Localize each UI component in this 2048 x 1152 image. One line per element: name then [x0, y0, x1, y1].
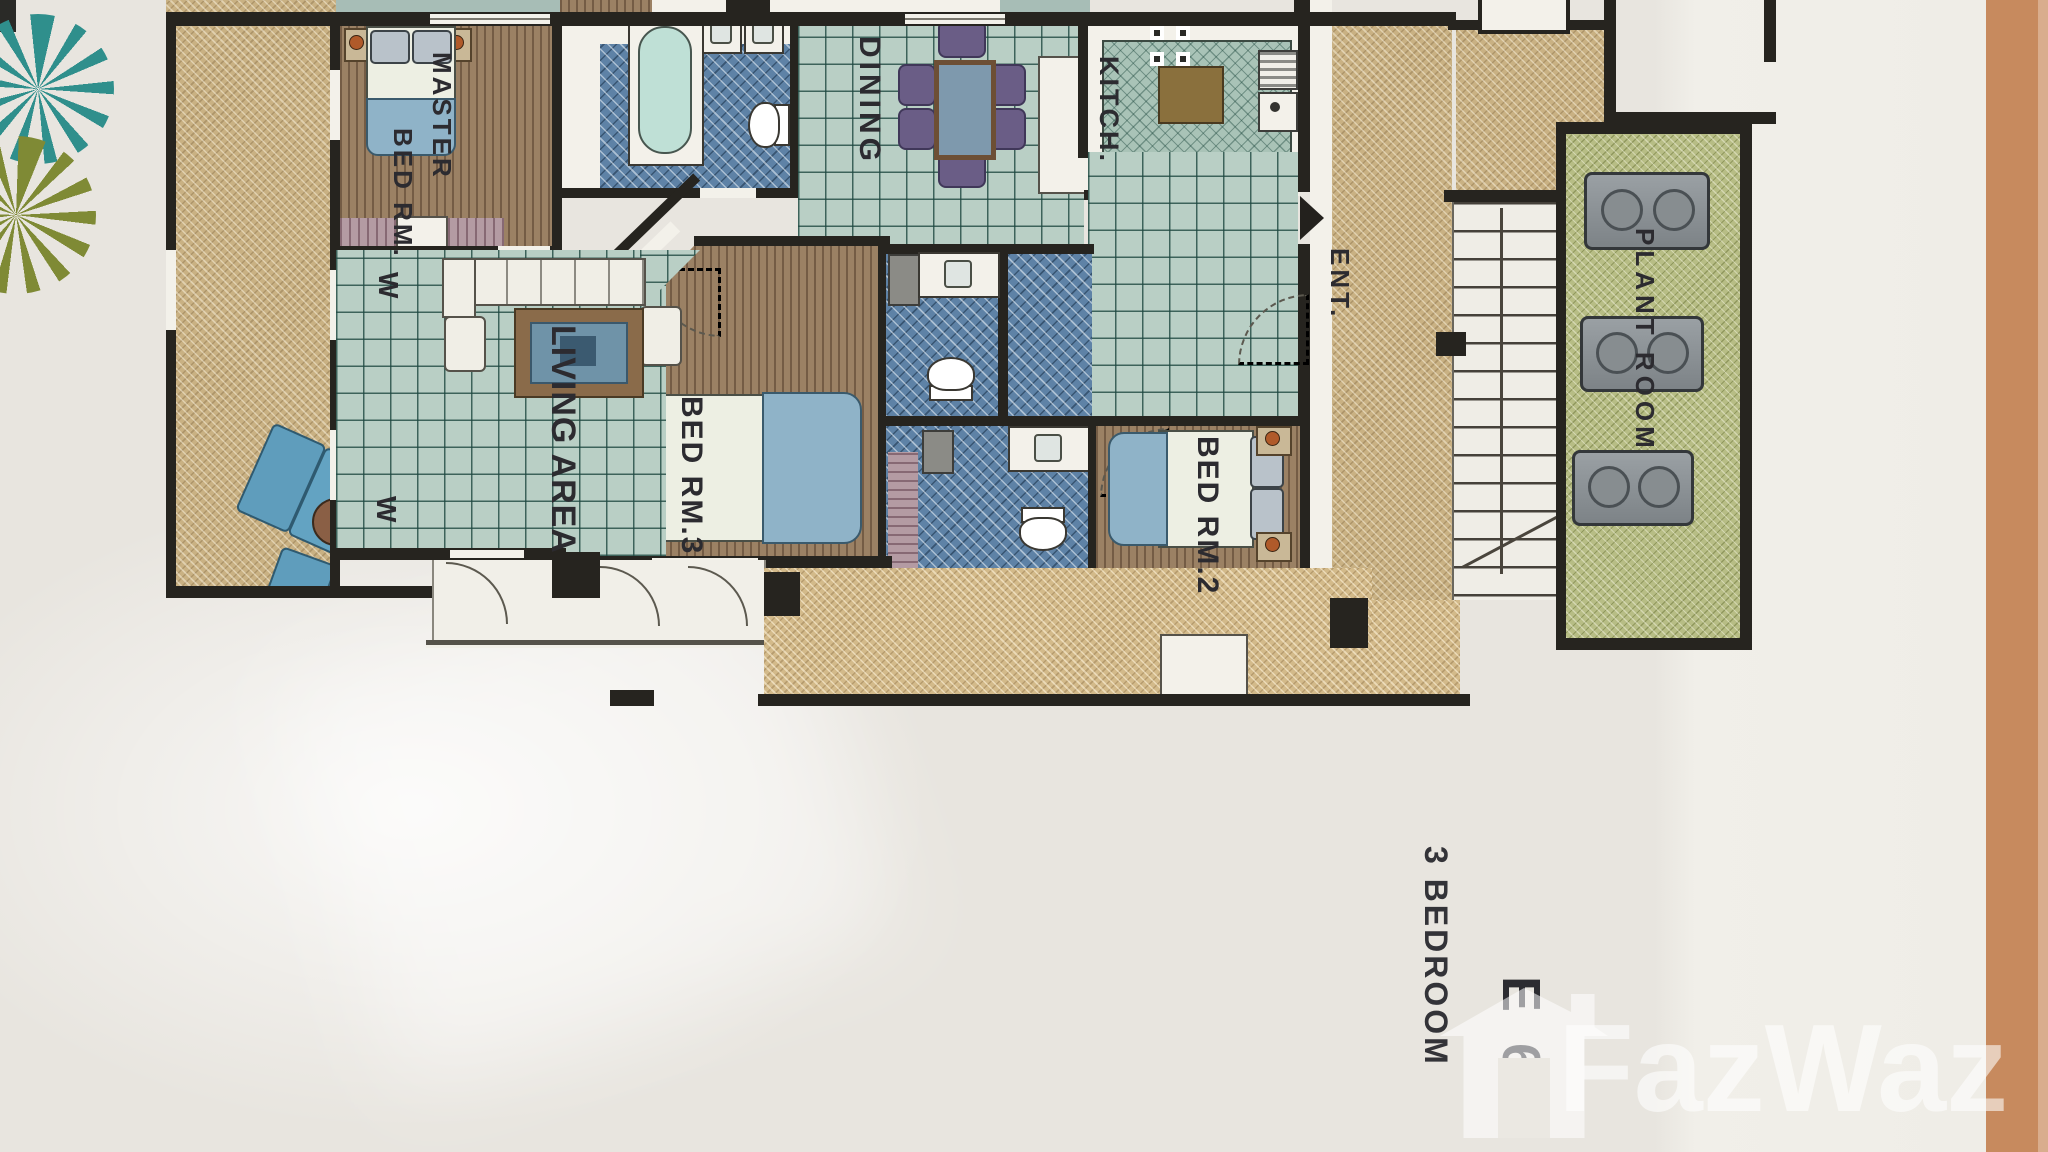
wall [1088, 424, 1096, 576]
window-mark: W [372, 496, 400, 522]
dining-chair [898, 64, 936, 106]
floor-plan-photo: MASTER BED RM. DINING KITCH. ENT. PLANT … [0, 0, 2048, 1152]
fan-icon [1653, 189, 1695, 231]
wall [1764, 0, 1776, 62]
fan-icon [1601, 189, 1643, 231]
wardrobe [888, 452, 918, 572]
bed-blanket [1108, 432, 1168, 546]
wall [1556, 122, 1752, 134]
bathtub-basin [638, 26, 692, 154]
window [330, 70, 340, 140]
window-mark: W [374, 272, 402, 298]
armchair [640, 306, 682, 366]
sofa [470, 258, 646, 306]
bottom-balcony [1372, 600, 1460, 698]
wall [1556, 122, 1566, 648]
sink-basin [944, 260, 972, 288]
sink-basin [1034, 434, 1062, 462]
bottom-balcony [764, 568, 1372, 700]
lamp-icon [1265, 431, 1280, 446]
wall [1740, 122, 1752, 648]
wall [1088, 416, 1310, 426]
wall-post [764, 572, 800, 616]
lounge-chair [261, 546, 334, 588]
label-bedroom2: BED RM.2 [1192, 436, 1222, 595]
wall [1298, 0, 1310, 192]
pillow [370, 30, 410, 64]
watermark-house-cut [1498, 1058, 1550, 1138]
stair-rail [1500, 208, 1503, 574]
stove-burner [1150, 26, 1164, 40]
wall [552, 14, 562, 252]
label-plant-room: PLANT ROOM [1632, 228, 1658, 453]
wall [166, 12, 1456, 26]
shower-pad [888, 254, 920, 306]
bathtub [628, 16, 704, 166]
wall [1078, 12, 1088, 158]
window [430, 14, 550, 24]
window [450, 550, 524, 558]
label-kitchen: KITCH. [1095, 56, 1122, 164]
watermark: FazWaz [1440, 980, 2048, 1152]
sofa-corner [442, 258, 476, 318]
wall-post [1330, 598, 1368, 648]
entrance-corridor [1332, 24, 1452, 644]
vent-grill [1258, 50, 1298, 90]
shower-pad [922, 430, 954, 474]
dining-table [934, 60, 996, 160]
fan-icon [1588, 466, 1630, 508]
dining-chair [898, 108, 936, 150]
corridor [1088, 152, 1298, 420]
kitchen-island [1158, 66, 1224, 124]
wall-post [552, 552, 600, 598]
watermark-text: FazWaz [1558, 998, 2008, 1140]
label-bedroom3: BED RM.3 [676, 396, 706, 555]
plant-icon [0, 136, 96, 294]
wall [1604, 0, 1616, 124]
wall [758, 694, 1470, 706]
wall [884, 416, 1094, 426]
bed-blanket [762, 392, 862, 544]
wall [166, 586, 432, 598]
stairs [1452, 202, 1558, 600]
stair-rail-end [1436, 332, 1466, 356]
toilet-bowl [748, 102, 780, 148]
stove-burner [1176, 52, 1190, 66]
dining-set [896, 20, 1024, 188]
wall [330, 548, 566, 560]
label-living-area: LIVING AREA [546, 325, 580, 554]
toilet-bowl [1019, 517, 1067, 551]
window [166, 250, 176, 330]
wall-post [610, 690, 654, 706]
faucet-icon [1270, 102, 1280, 112]
label-master-bedroom-line2: BED RM. [390, 128, 416, 259]
lamp-icon [1265, 537, 1280, 552]
toilet [1013, 507, 1069, 553]
label-entrance: ENT. [1327, 248, 1353, 320]
stove-burner [1176, 26, 1190, 40]
terrace [174, 22, 334, 588]
lamp-icon [349, 35, 364, 50]
door-opening [700, 188, 756, 198]
armchair [444, 316, 486, 372]
ac-unit [1572, 450, 1694, 526]
stove-burner [1150, 52, 1164, 66]
kitchen-sink [1258, 92, 1298, 132]
fan-icon [1638, 466, 1680, 508]
wall [1444, 190, 1566, 202]
toilet-bowl [927, 357, 975, 391]
label-dining: DINING [854, 36, 884, 165]
wall [1556, 638, 1752, 650]
toilet [925, 355, 981, 401]
label-master-bedroom-line1: MASTER [429, 52, 455, 180]
wall [878, 248, 886, 578]
toilet [748, 98, 788, 150]
wall [694, 236, 890, 246]
window [905, 14, 1005, 24]
room-above [1478, 0, 1570, 34]
porch-edge [426, 640, 764, 648]
